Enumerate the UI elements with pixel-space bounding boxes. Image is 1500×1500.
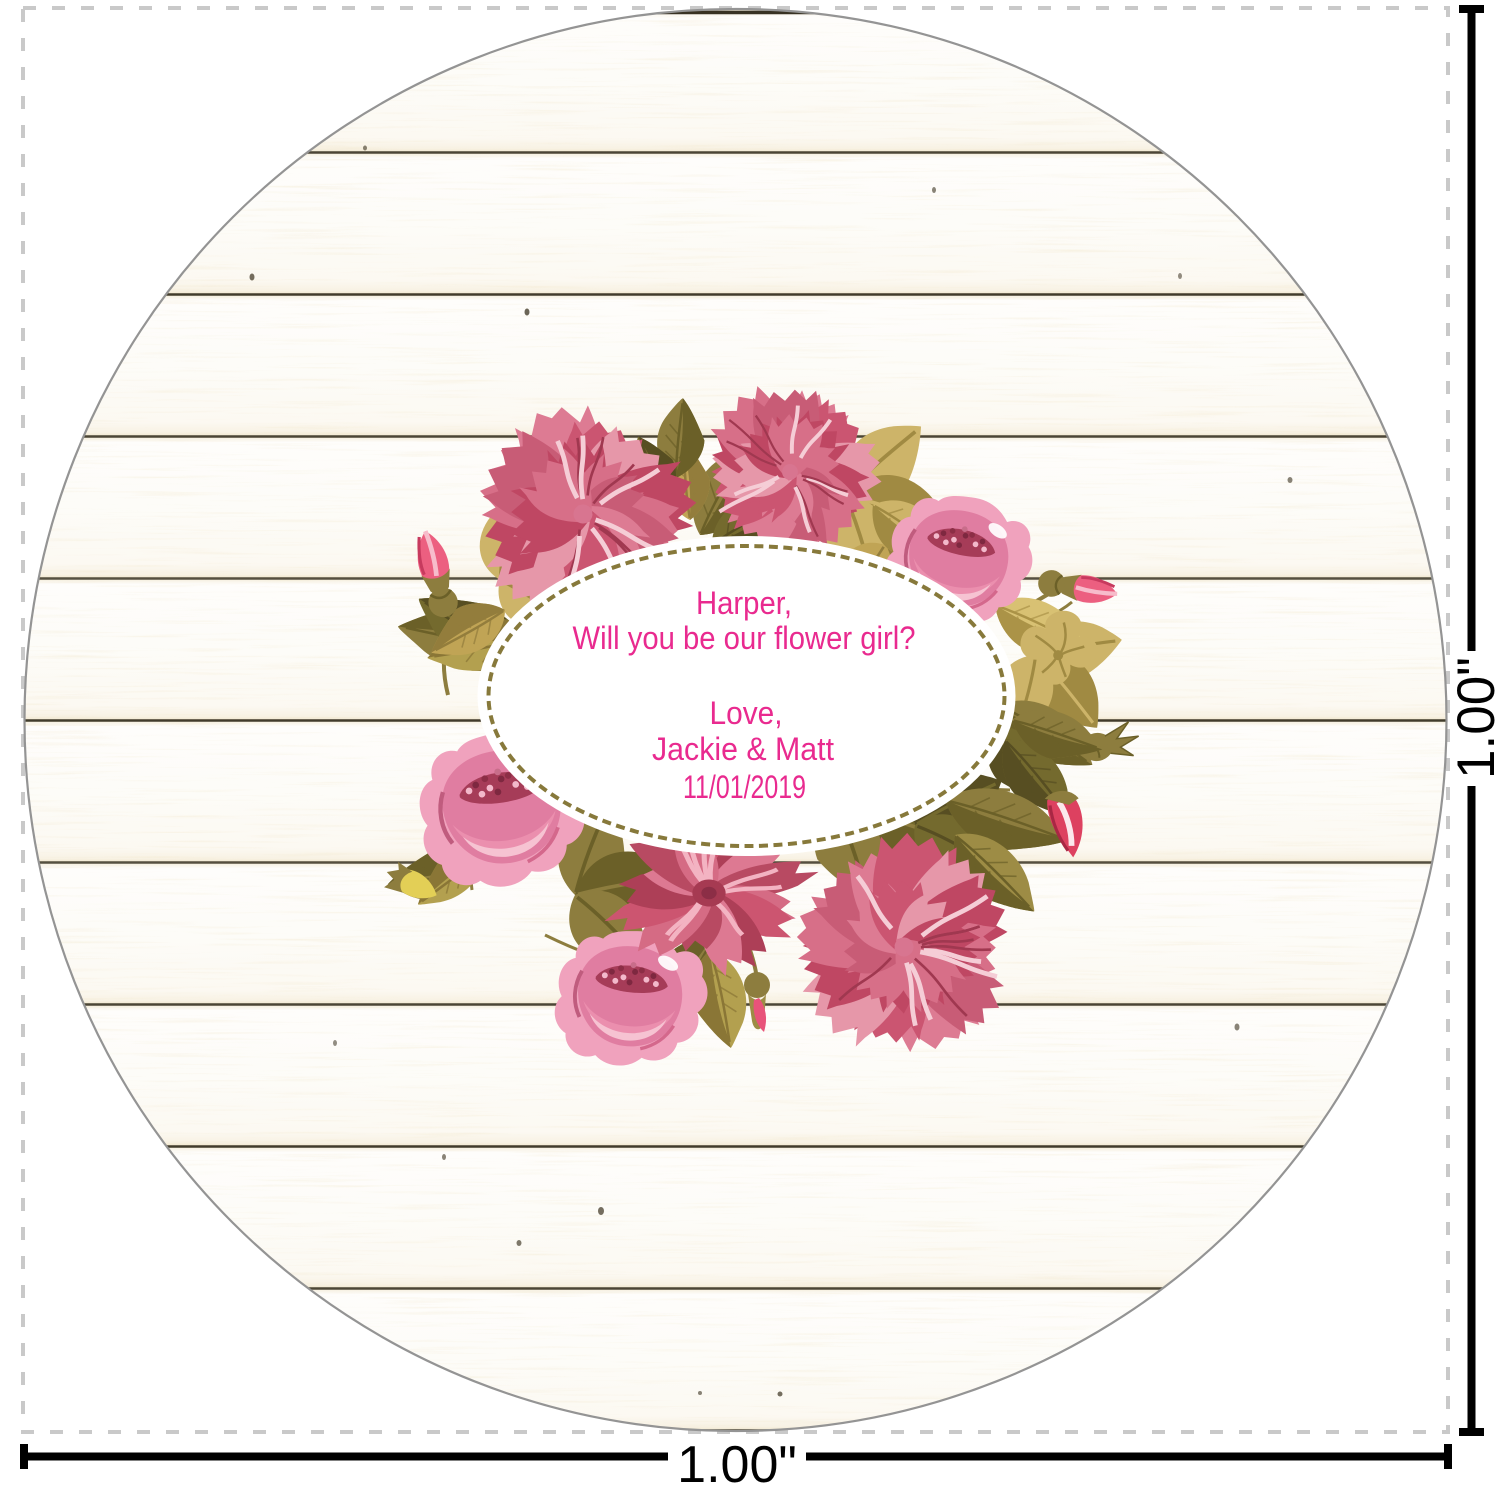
svg-text:Harper,: Harper, <box>696 585 792 621</box>
svg-text:1.00": 1.00" <box>1447 657 1500 779</box>
svg-text:1.00": 1.00" <box>677 1436 797 1494</box>
svg-text:Jackie & Matt: Jackie & Matt <box>652 731 834 767</box>
svg-text:Will you be our flower girl?: Will you be our flower girl? <box>573 620 916 656</box>
svg-text:Love,: Love, <box>710 695 783 731</box>
svg-text:11/01/2019: 11/01/2019 <box>683 769 806 805</box>
